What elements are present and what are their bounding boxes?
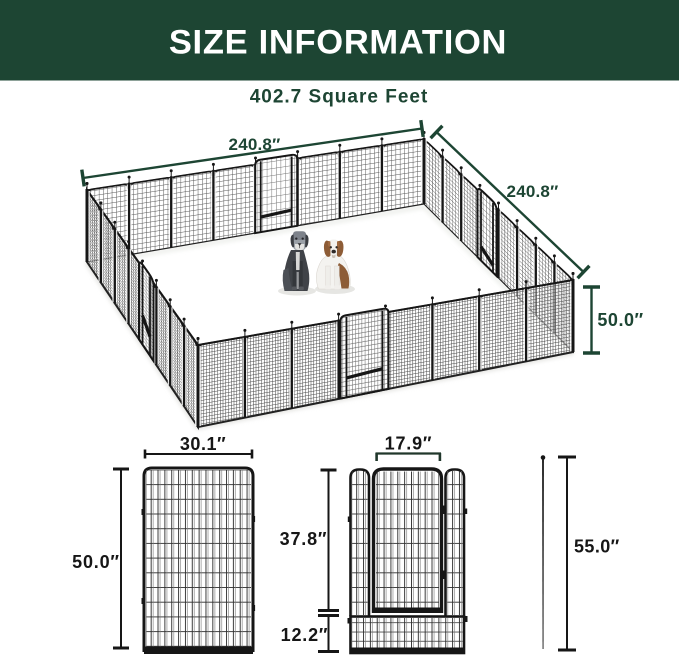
svg-text:17.9″: 17.9″	[385, 434, 433, 454]
svg-text:12.2″: 12.2″	[281, 625, 329, 645]
svg-text:240.8″: 240.8″	[507, 182, 559, 201]
svg-text:SIZE INFORMATION: SIZE INFORMATION	[169, 24, 507, 62]
svg-text:50.0″: 50.0″	[597, 310, 643, 330]
svg-text:240.8″: 240.8″	[229, 135, 281, 154]
svg-text:30.1″: 30.1″	[180, 434, 226, 454]
svg-text:37.8″: 37.8″	[280, 529, 328, 549]
svg-text:50.0″: 50.0″	[72, 552, 120, 572]
svg-text:55.0″: 55.0″	[574, 537, 620, 557]
svg-text:402.7 Square Feet: 402.7 Square Feet	[250, 87, 429, 108]
